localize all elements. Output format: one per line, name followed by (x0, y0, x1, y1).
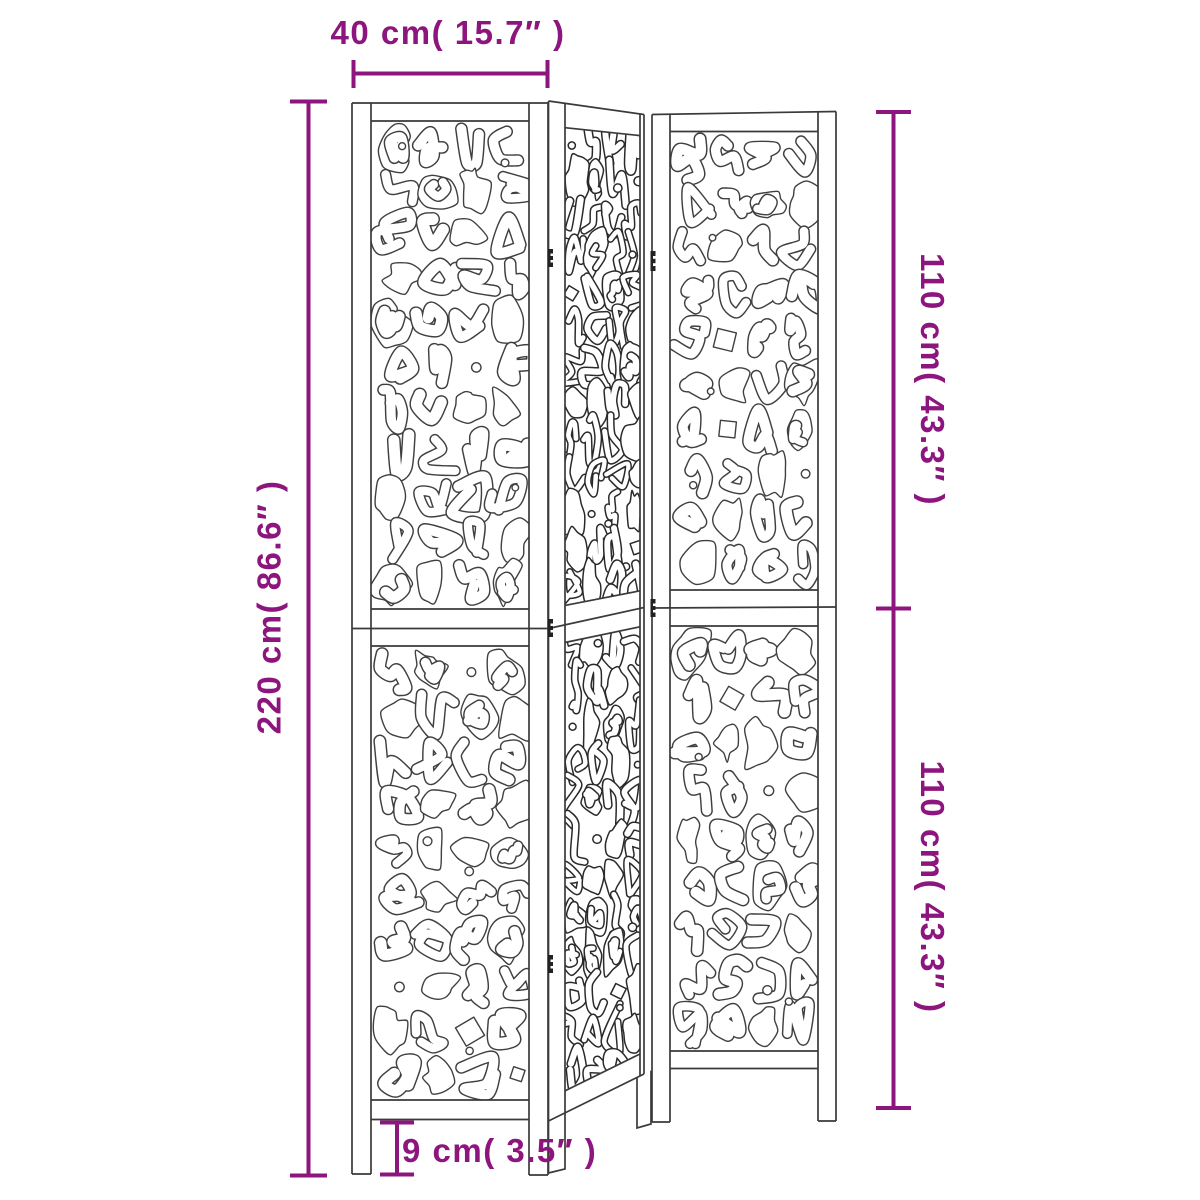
svg-text:220 cm( 86.6″ ): 220 cm( 86.6″ ) (251, 480, 288, 735)
svg-text:110 cm( 43.3″ ): 110 cm( 43.3″ ) (914, 761, 951, 1014)
svg-text:9 cm( 3.5″ ): 9 cm( 3.5″ ) (402, 1132, 597, 1169)
svg-text:40 cm( 15.7″ ): 40 cm( 15.7″ ) (331, 14, 566, 51)
svg-text:110 cm( 43.3″ ): 110 cm( 43.3″ ) (914, 253, 951, 506)
